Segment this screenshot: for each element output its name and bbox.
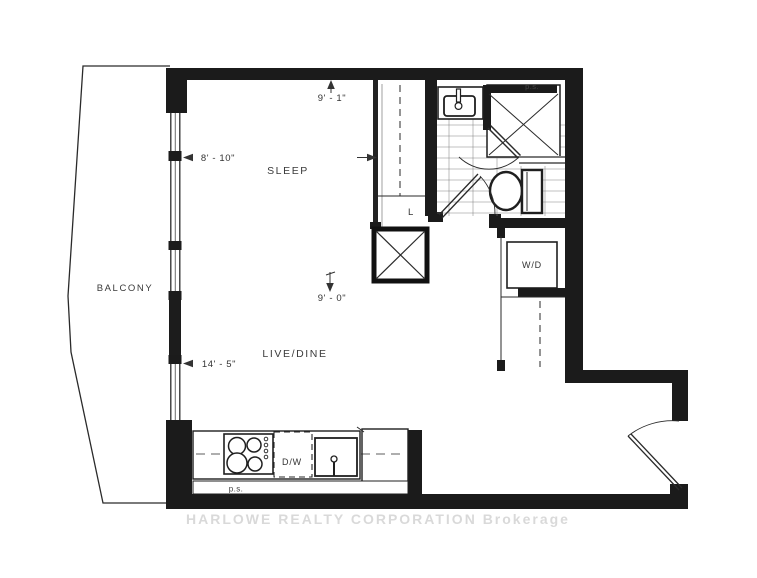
bathroom-door-leaf xyxy=(442,177,481,218)
dim-arrow-left-icon xyxy=(183,360,193,367)
window-mullion xyxy=(169,355,182,364)
balcony-label: BALCONY xyxy=(97,283,154,294)
toilet xyxy=(490,170,542,213)
dim-arrow-down-icon xyxy=(326,283,334,292)
bathroom-door xyxy=(439,174,495,218)
entry-top-wall xyxy=(565,370,688,383)
dishwasher-label: D/W xyxy=(282,457,302,467)
window-mullion xyxy=(169,151,182,161)
kitchen-sink xyxy=(315,438,357,476)
entry-door-leaf xyxy=(628,436,679,490)
pipe-shaft-top-label: p.s. xyxy=(525,82,539,91)
spandrel-wall xyxy=(169,300,181,356)
dimension-sleep-width: 8' - 10" xyxy=(201,153,235,164)
bathroom-bottom-wall xyxy=(500,218,570,228)
entry-door xyxy=(628,421,682,490)
live-dine-label: LIVE/DINE xyxy=(262,348,327,360)
bathroom-left-wall xyxy=(425,80,437,216)
floor-plan-svg: BALCONY L xyxy=(0,0,757,578)
wd-lower-wall xyxy=(518,288,567,297)
dishwasher: D/W xyxy=(274,432,312,477)
stove-knob-icon xyxy=(264,437,268,441)
bottom-left-wall xyxy=(166,420,192,509)
stove xyxy=(224,434,273,474)
toilet-tank xyxy=(522,170,542,213)
burner-icon xyxy=(227,453,247,473)
burner-icon xyxy=(229,438,246,455)
laundry-and-closet: W/D xyxy=(497,228,567,371)
window-mullion xyxy=(169,241,182,250)
shower-stall xyxy=(487,85,560,157)
bathroom: p.s. xyxy=(425,80,570,228)
kitchen-right-wall xyxy=(408,430,422,496)
dimension-annotations: 9' - 1" 8' - 10" 9' - 0" 14' - 5" xyxy=(183,80,377,370)
linen-closet: L xyxy=(370,80,425,229)
vanity xyxy=(438,87,483,119)
dishwasher-outline xyxy=(274,432,312,477)
window-wall xyxy=(169,113,182,420)
pipe-shaft-strip xyxy=(193,481,408,494)
shower-top-wall xyxy=(483,85,557,93)
shower-left-wall xyxy=(483,85,491,130)
burner-icon xyxy=(247,438,261,452)
kitchen-faucet-head-icon xyxy=(331,456,337,462)
dimension-sleep-top: 9' - 1" xyxy=(318,93,346,104)
washer-dryer-label: W/D xyxy=(522,260,542,270)
burner-icon xyxy=(248,457,262,471)
bathroom-door-jamb-right xyxy=(489,214,501,228)
toilet-bowl xyxy=(490,172,522,210)
kitchen: D/W p.s. xyxy=(193,427,408,494)
floor-plan-page: BALCONY L xyxy=(0,0,757,578)
sink-drain-icon xyxy=(455,103,462,110)
top-left-corner-wall xyxy=(166,68,187,113)
shaft-box xyxy=(374,229,427,281)
linen-closet-label: L xyxy=(408,207,414,218)
stove-knob-icon xyxy=(264,455,268,459)
window-mullion xyxy=(169,291,182,300)
entry-door-jamb-upper xyxy=(672,383,688,421)
faucet-icon xyxy=(457,89,461,102)
shower-door-swing-arc xyxy=(459,157,519,169)
top-wall xyxy=(168,68,583,80)
stove-knob-icon xyxy=(264,449,268,453)
pipe-shaft-bottom-label: p.s. xyxy=(229,485,244,494)
closet-left-wall xyxy=(373,80,378,224)
sleep-label: SLEEP xyxy=(267,165,309,177)
wd-jamb-bottom xyxy=(497,360,505,371)
dim-arrow-left-icon xyxy=(183,154,193,161)
dimension-live-width: 14' - 5" xyxy=(202,359,236,370)
brokerage-watermark: HARLOWE REALTY CORPORATION Brokerage xyxy=(186,511,570,527)
entry-door-leaf xyxy=(631,434,682,488)
stove-knob-icon xyxy=(264,443,268,447)
bottom-wall xyxy=(176,494,688,509)
dimension-live-height: 9' - 0" xyxy=(318,293,346,304)
kitchen-counter-right xyxy=(362,429,408,484)
entry-door-swing-arc xyxy=(628,421,679,436)
